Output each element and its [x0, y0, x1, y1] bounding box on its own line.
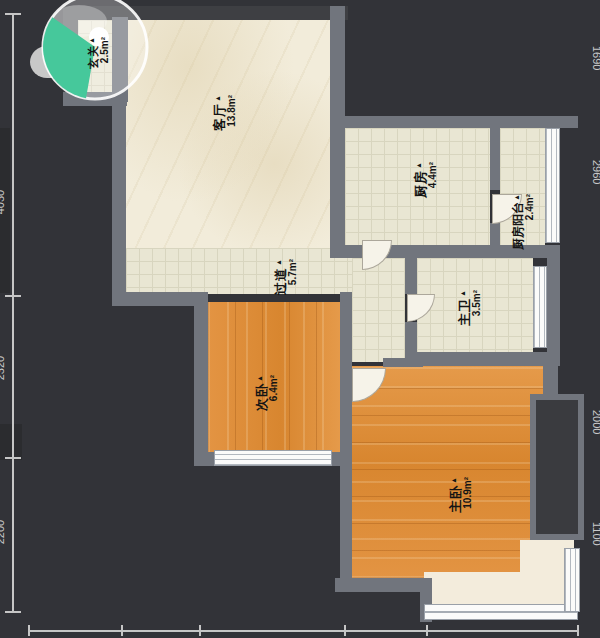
window-balcony-bottom — [424, 604, 578, 620]
room-area: 2.4m² — [525, 194, 536, 220]
room-label-kitchen[interactable]: 厨房▲ 4.4m² — [414, 162, 438, 198]
window-balcony-right — [564, 548, 580, 612]
room-area: 10.9m² — [463, 477, 474, 509]
room-area: 6.4m² — [269, 375, 280, 401]
room-label-kitchen-balcony[interactable]: 厨房阳台▲ 2.4m² — [512, 194, 535, 250]
wall-living-right — [330, 6, 345, 128]
room-label-corridor[interactable]: 过道▲ 5.7m² — [274, 259, 298, 295]
wall-bathroom-left — [405, 258, 417, 294]
wall-kitchen-balcony-divider — [490, 223, 500, 245]
dimension-value-right: 2000 — [591, 410, 600, 434]
room-name: 主卧▲ — [449, 477, 463, 513]
dimension-tick — [5, 457, 21, 459]
room-name: 厨房▲ — [414, 162, 428, 198]
wall-kitchen-balcony-divider — [490, 128, 500, 190]
dimension-value-left: 4030 — [0, 180, 6, 224]
wall-kitchen-top — [330, 116, 578, 128]
window-kitchen-balcony — [545, 128, 560, 243]
wall-kitchen-bottom — [330, 245, 512, 258]
room-floor-corridor-south — [352, 258, 405, 362]
wall-kitchen-left — [330, 128, 345, 258]
dimension-tick — [577, 625, 579, 636]
dimension-tick — [5, 611, 21, 613]
room-name: 主卫▲ — [458, 290, 472, 326]
room-floor-living — [126, 20, 332, 252]
wall-living-left — [112, 98, 126, 298]
label-marker-icon: ▲ — [459, 290, 466, 297]
dimension-tick — [5, 295, 21, 297]
wall-master-left — [340, 292, 352, 592]
room-label-bedroom2[interactable]: 次卧▲ 6.4m² — [255, 375, 279, 411]
room-label-living[interactable]: 客厅▲ 13.8m² — [213, 95, 237, 131]
wall-bedroom2-bottom — [330, 452, 352, 466]
wall-master-bottom — [335, 578, 432, 592]
dimension-line-bottom — [29, 630, 578, 632]
label-marker-icon: ▲ — [214, 95, 221, 102]
dimension-value-right: 1100 — [591, 522, 600, 546]
wall-bathroom-right — [547, 245, 560, 366]
dimension-line-left — [12, 14, 14, 612]
label-marker-icon: ▲ — [513, 194, 520, 201]
dimension-tick — [426, 625, 428, 636]
label-marker-icon: ▲ — [450, 477, 457, 484]
neighbor-shadow — [0, 424, 22, 460]
dimension-value-left: 2200 — [0, 510, 6, 554]
void-area — [536, 400, 578, 534]
label-marker-icon: ▲ — [256, 375, 263, 382]
label-marker-icon: ▲ — [88, 37, 95, 44]
room-area: 5.7m² — [288, 259, 299, 285]
wall-master-top — [383, 358, 423, 367]
label-marker-icon: ▲ — [275, 259, 282, 266]
dimension-tick — [28, 625, 30, 636]
room-name: 厨房阳台▲ — [512, 194, 525, 250]
room-label-bathroom[interactable]: 主卫▲ 3.5m² — [458, 290, 482, 326]
dimension-tick — [344, 625, 346, 636]
label-marker-icon: ▲ — [415, 162, 422, 169]
room-area: 2.5m² — [100, 37, 111, 63]
dimension-tick — [199, 625, 201, 636]
floorplan-canvas: 玄关▲ 2.5m² 客厅▲ 13.8m² 厨房▲ 4.4m² 厨房阳台▲ 2.4… — [0, 0, 600, 638]
window-bedroom2 — [214, 450, 332, 466]
dimension-tick — [5, 13, 21, 15]
dimension-value-left: 2320 — [0, 346, 6, 390]
room-label-entrance[interactable]: 玄关▲ 2.5m² — [88, 37, 110, 69]
room-area: 3.5m² — [472, 290, 483, 316]
wall-master-right — [543, 358, 558, 400]
room-label-master-bedroom[interactable]: 主卧▲ 10.9m² — [449, 477, 473, 513]
wall-bathroom-bottom — [405, 352, 560, 366]
room-name: 玄关▲ — [88, 37, 100, 69]
window-bathroom — [533, 266, 547, 348]
room-floor-master-bedroom — [352, 366, 543, 578]
room-area: 4.4m² — [428, 162, 439, 188]
dimension-value-right: 2960 — [591, 160, 600, 184]
room-name: 客厅▲ — [213, 95, 227, 131]
wall-bedroom2-left — [194, 298, 208, 466]
room-name: 次卧▲ — [255, 375, 269, 411]
dimension-tick — [121, 625, 123, 636]
room-name: 过道▲ — [274, 259, 288, 295]
room-area: 13.8m² — [227, 95, 238, 127]
dimension-value-right: 1690 — [591, 46, 600, 70]
